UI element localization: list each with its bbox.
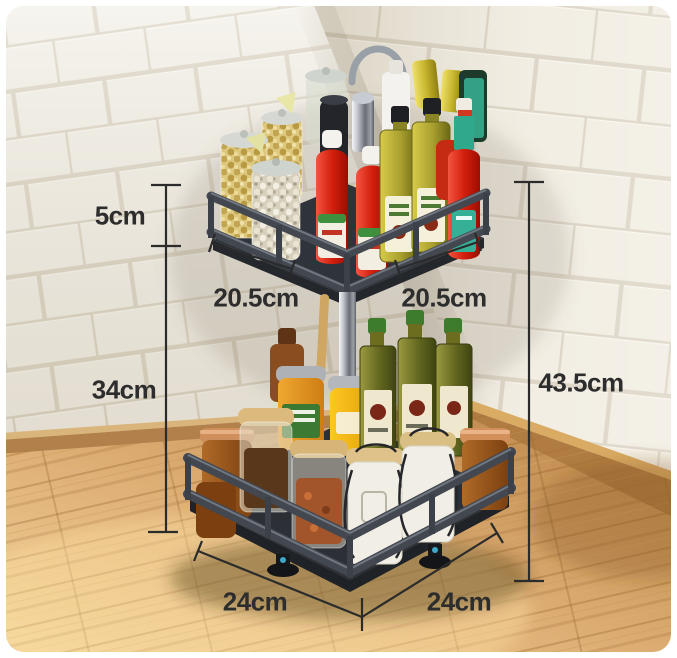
scene <box>6 6 671 652</box>
photo-frame <box>6 6 671 652</box>
product-photo-card: 5cm 34cm 20.5cm 20.5cm 43.5cm 24cm 24cm <box>0 0 677 658</box>
chrome-shaker <box>352 92 374 152</box>
